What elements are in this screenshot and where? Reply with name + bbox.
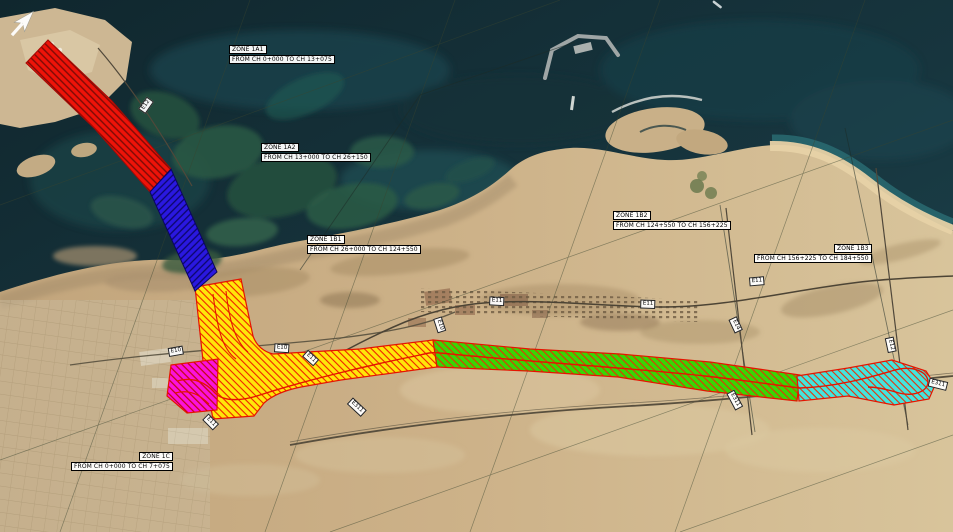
zone-label-1a1: ZONE 1A1 FROM CH 0+000 TO CH 13+075 xyxy=(229,45,335,64)
zone-label-1b1: ZONE 1B1 FROM CH 26+000 TO CH 124+550 xyxy=(307,235,421,254)
zone-1c-name: ZONE 1C xyxy=(139,452,173,461)
zone-1a2-range: FROM CH 13+000 TO CH 26+150 xyxy=(261,153,371,162)
city-grid-area xyxy=(0,300,210,532)
zone-1a1-name: ZONE 1A1 xyxy=(229,45,267,54)
zone-1b3-range: FROM CH 156+225 TO CH 184+550 xyxy=(754,254,872,263)
zone-label-1a2: ZONE 1A2 FROM CH 13+000 TO CH 26+150 xyxy=(261,143,371,162)
zone-label-1b2: ZONE 1B2 FROM CH 124+550 TO CH 156+225 xyxy=(613,211,731,230)
satellite-alignment-map: ZONE 1A1 FROM CH 0+000 TO CH 13+075 ZONE… xyxy=(0,0,953,532)
road-label-e11: E11 xyxy=(749,276,765,286)
zone-1b2-range: FROM CH 124+550 TO CH 156+225 xyxy=(613,221,731,230)
road-label-e11: E11 xyxy=(489,296,505,305)
zone-1c-range: FROM CH 0+000 TO CH 7+075 xyxy=(71,462,173,471)
zone-label-1b3: ZONE 1B3 FROM CH 156+225 TO CH 184+550 xyxy=(754,244,872,263)
zone-1b1-range: FROM CH 26+000 TO CH 124+550 xyxy=(307,245,421,254)
road-label-e11: E11 xyxy=(640,299,656,308)
zone-1a2-name: ZONE 1A2 xyxy=(261,143,299,152)
zone-label-1c: ZONE 1C FROM CH 0+000 TO CH 7+075 xyxy=(71,452,173,471)
zone-1a1-range: FROM CH 0+000 TO CH 13+075 xyxy=(229,55,335,64)
zone-1b2-name: ZONE 1B2 xyxy=(613,211,651,220)
zone-1b1-name: ZONE 1B1 xyxy=(307,235,345,244)
zone-1b3-name: ZONE 1B3 xyxy=(834,244,872,253)
road-label-e10: E10 xyxy=(274,343,290,353)
